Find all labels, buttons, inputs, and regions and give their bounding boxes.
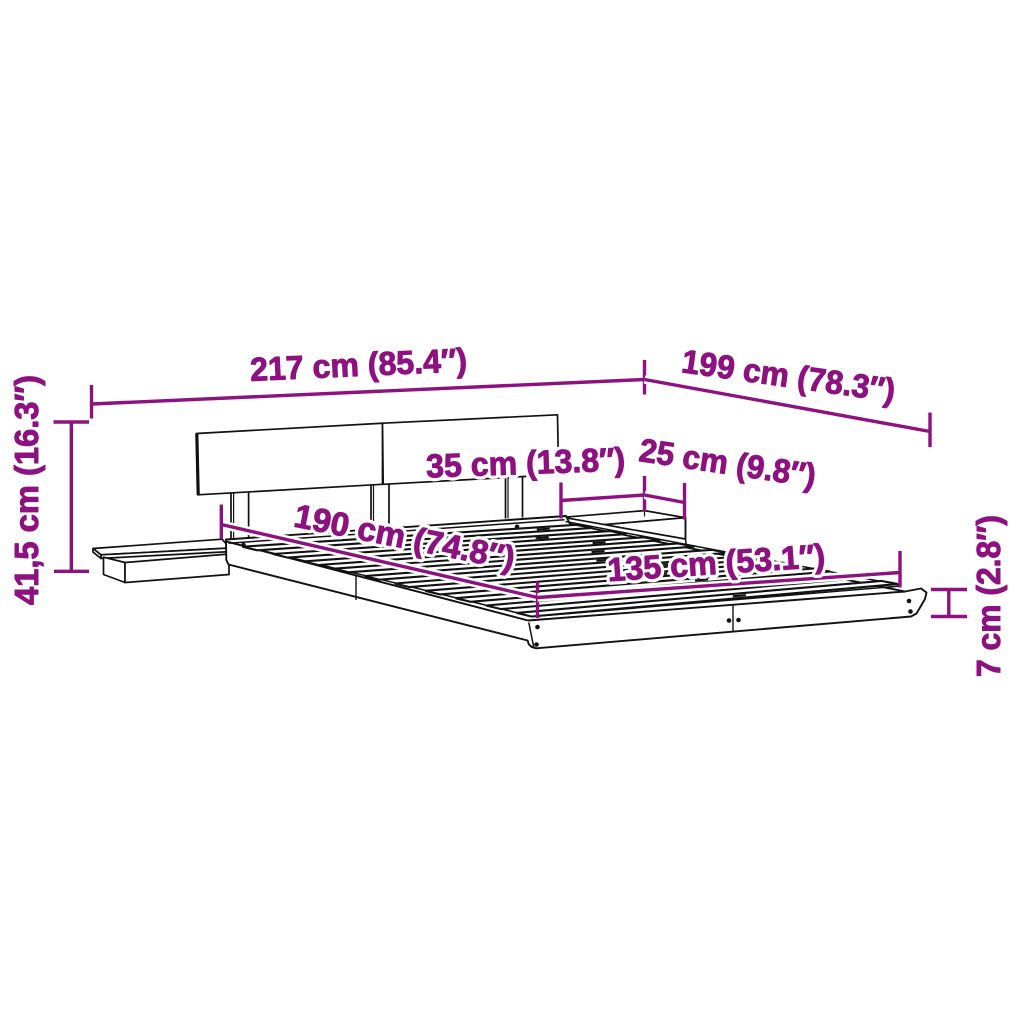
svg-text:7 cm (2.8″): 7 cm (2.8″): [970, 515, 1007, 677]
svg-text:41,5 cm (16.3″): 41,5 cm (16.3″): [8, 375, 45, 605]
svg-text:35 cm (13.8″): 35 cm (13.8″): [426, 441, 626, 485]
